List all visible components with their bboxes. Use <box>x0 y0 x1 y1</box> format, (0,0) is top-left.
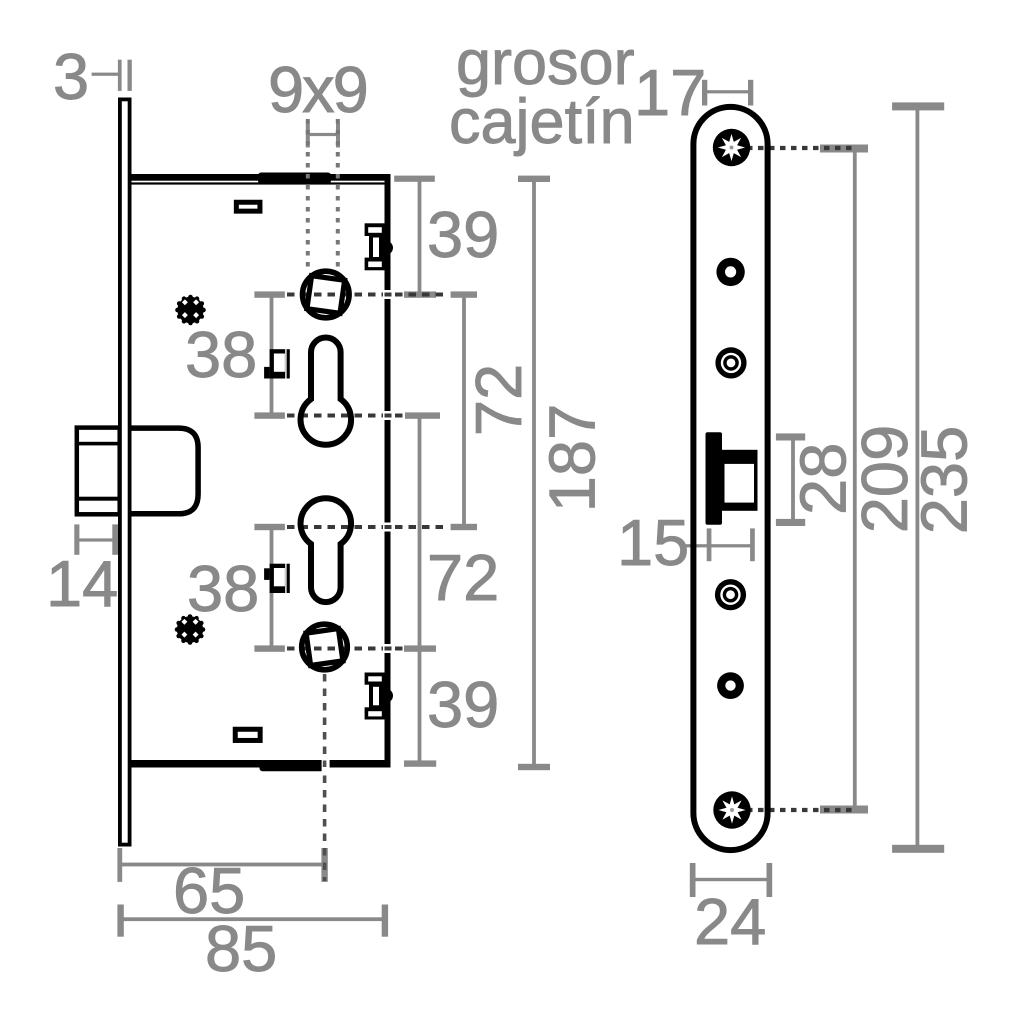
svg-text:17: 17 <box>634 56 706 129</box>
svg-text:72: 72 <box>462 364 535 436</box>
svg-text:38: 38 <box>185 318 257 391</box>
svg-text:39: 39 <box>427 668 499 741</box>
svg-text:24: 24 <box>694 885 766 958</box>
svg-text:3: 3 <box>53 40 89 113</box>
svg-text:85: 85 <box>205 912 277 985</box>
svg-text:14: 14 <box>46 547 118 620</box>
svg-text:9x9: 9x9 <box>268 53 367 126</box>
svg-text:72: 72 <box>427 541 499 614</box>
svg-text:38: 38 <box>187 552 259 625</box>
svg-text:187: 187 <box>536 404 609 512</box>
svg-text:235: 235 <box>908 426 981 534</box>
svg-text:15: 15 <box>617 506 689 579</box>
svg-text:cajetín: cajetín <box>449 87 635 157</box>
svg-text:39: 39 <box>427 198 499 271</box>
